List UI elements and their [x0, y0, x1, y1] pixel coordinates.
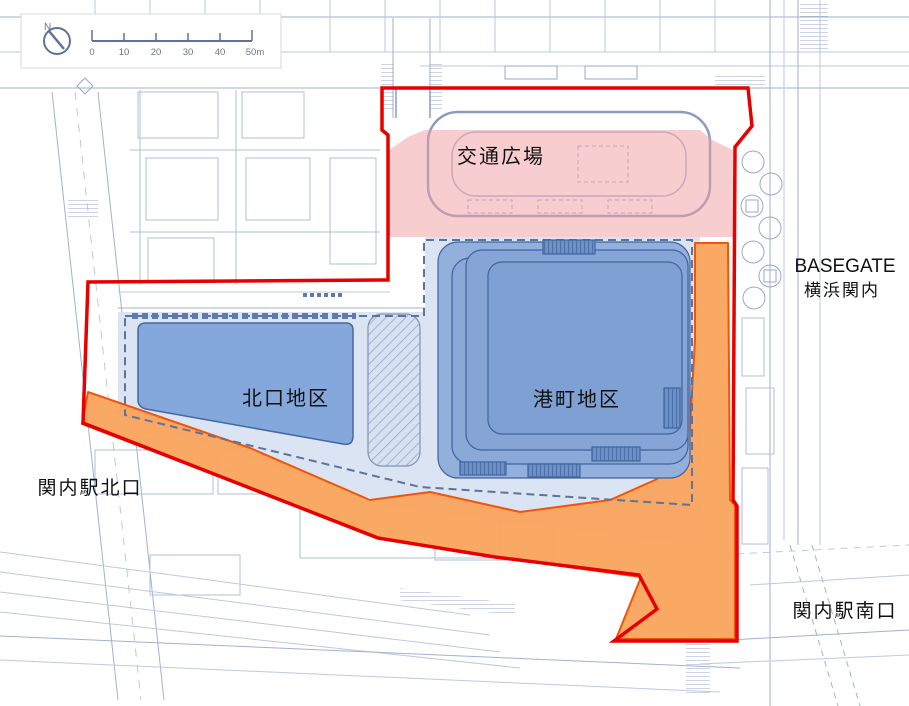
scale-tick: 20	[151, 47, 162, 58]
rail-hatch-icon	[800, 2, 828, 52]
stair-hatch-icon	[686, 636, 710, 694]
scale-tick: 30	[183, 47, 194, 58]
label-basegate-yokohama-kannai: 横浜関内	[804, 281, 880, 300]
plaza-diamond-icon	[77, 78, 93, 94]
north-label: N	[44, 22, 51, 33]
area-minatomachi-stack	[438, 240, 690, 478]
stair-block-icon	[664, 388, 680, 428]
stair-block-icon	[543, 240, 595, 254]
label-traffic-plaza: 交通広場	[457, 145, 545, 168]
stair-block-icon	[592, 447, 640, 461]
tree-row-icon	[741, 151, 782, 309]
label-kannai-station-north-exit: 関内駅北口	[37, 477, 142, 499]
label-kannai-station-south-exit: 関内駅南口	[792, 600, 897, 622]
site-plan-map: N 0 10 20 30 40 50m 交通広場 北口地区 港町地区 BASEG…	[0, 0, 909, 706]
scale-tick: 10	[119, 47, 130, 58]
scale-tick: 40	[215, 47, 226, 58]
stair-block-icon	[460, 462, 506, 475]
plan-canvas: N 0 10 20 30 40 50m 交通広場 北口地区 港町地区 BASEG…	[0, 0, 909, 706]
city-blocks-upper-left	[130, 90, 380, 284]
platform-hatch-icon	[400, 588, 515, 616]
bus-stop-icon	[585, 66, 637, 79]
bus-stop-icon	[505, 66, 557, 79]
label-minatomachi-district: 港町地区	[533, 388, 621, 411]
scale-tick: 0	[89, 47, 94, 58]
stair-block-icon	[528, 464, 580, 477]
area-traffic-plaza	[389, 130, 733, 237]
scale-tick: 50m	[246, 47, 265, 58]
label-basegate: BASEGATE	[794, 256, 895, 277]
city-blocks-right	[742, 318, 774, 544]
rail-tracks	[0, 552, 520, 668]
label-north-exit-district: 北口地区	[242, 387, 330, 410]
scale-bar-box: N 0 10 20 30 40 50m	[21, 14, 281, 68]
hatched-strip	[368, 314, 420, 466]
crosswalk-icon	[68, 198, 98, 218]
